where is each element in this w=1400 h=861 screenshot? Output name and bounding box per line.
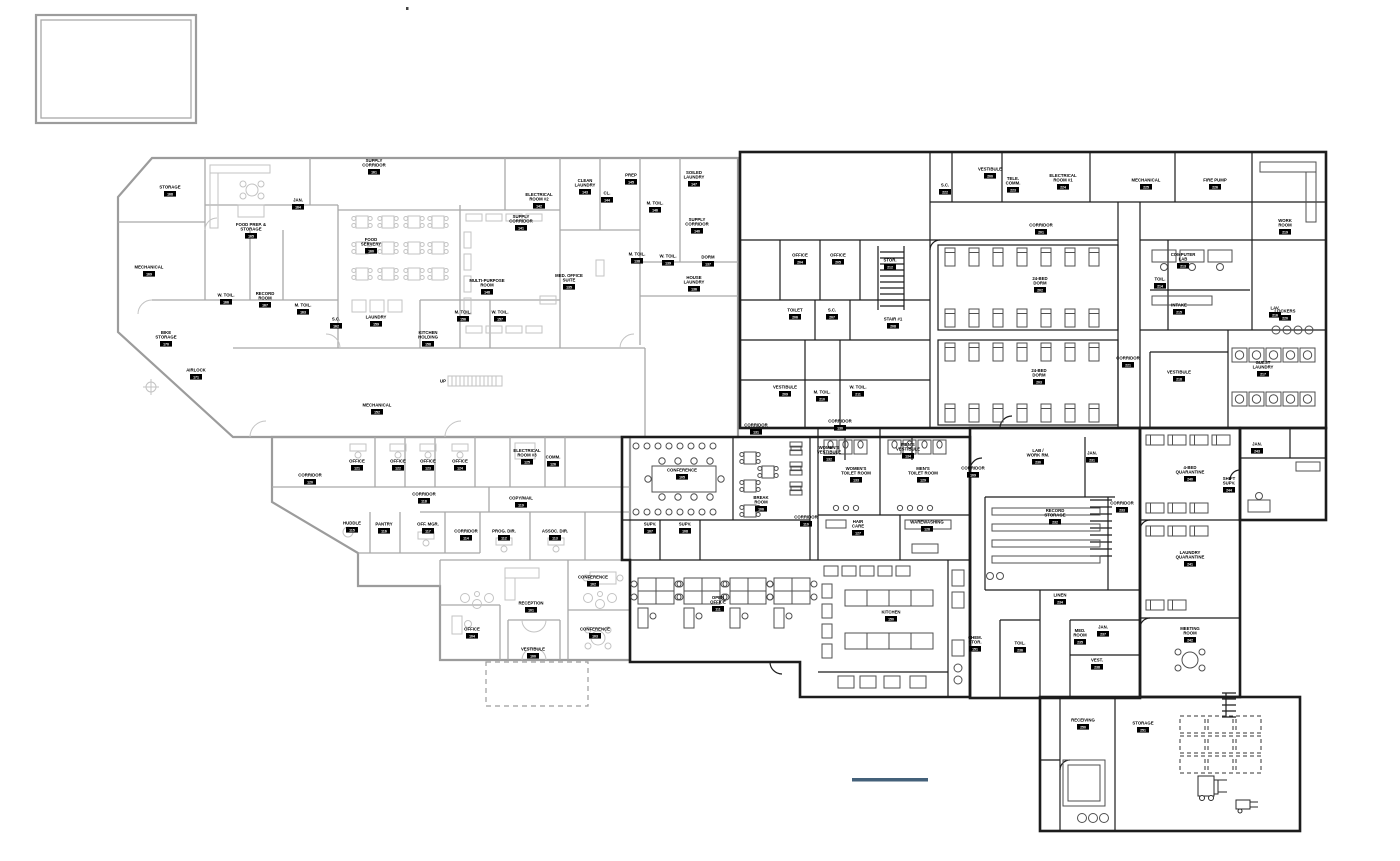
svg-text:TOILET: TOILET xyxy=(787,308,803,313)
room-label: SHIFTSUPV.244 xyxy=(1223,476,1236,493)
room-label: OFFICE104 xyxy=(464,627,480,639)
svg-text:STOR.: STOR. xyxy=(883,258,896,263)
room-label: BREAKROOM106 xyxy=(753,495,769,512)
svg-text:RECEPTION: RECEPTION xyxy=(518,601,543,606)
svg-text:W. TOIL.: W. TOIL. xyxy=(659,254,676,259)
svg-text:CHEM.STOR.: CHEM.STOR. xyxy=(968,635,982,645)
room-label: JAN.231 xyxy=(1086,451,1098,463)
kitchen-equipment xyxy=(822,566,964,688)
svg-text:126: 126 xyxy=(550,462,556,466)
svg-text:PROG. DIR.: PROG. DIR. xyxy=(492,529,516,534)
svg-text:213: 213 xyxy=(1180,264,1186,268)
svg-text:CORRIDOR: CORRIDOR xyxy=(412,492,436,497)
svg-text:236: 236 xyxy=(1017,648,1023,652)
room-label: CORRIDOR201 xyxy=(1029,223,1053,235)
svg-text:LAUNDRY: LAUNDRY xyxy=(366,315,387,320)
svg-text:M. TOIL.: M. TOIL. xyxy=(814,390,831,395)
svg-text:DORM: DORM xyxy=(701,255,715,260)
room-label: S.C.162 xyxy=(330,317,342,329)
svg-text:CORRIDOR: CORRIDOR xyxy=(298,473,322,478)
room-label: LINEN234 xyxy=(1054,593,1067,605)
svg-text:HAIRCARE: HAIRCARE xyxy=(852,519,864,529)
svg-text:HUDDLE: HUDDLE xyxy=(343,521,361,526)
room-label: OPENOFFICE111 xyxy=(710,595,726,612)
records-shelving xyxy=(987,508,1101,580)
room-label: W. TOIL.211 xyxy=(849,385,866,397)
svg-text:MED.ROOM: MED.ROOM xyxy=(1073,628,1087,638)
svg-text:140: 140 xyxy=(694,229,700,233)
svg-text:RECORDSTORAGE: RECORDSTORAGE xyxy=(1044,508,1065,518)
room-label: SOILEDLAUNDRY147 xyxy=(684,170,705,187)
svg-text:144: 144 xyxy=(604,198,610,202)
svg-text:OFFICE: OFFICE xyxy=(464,627,480,632)
svg-text:230: 230 xyxy=(1035,460,1041,464)
room-label: CL.144 xyxy=(601,191,613,203)
svg-text:PANTRY: PANTRY xyxy=(375,522,392,527)
svg-text:OPENOFFICE: OPENOFFICE xyxy=(710,595,726,605)
svg-text:143: 143 xyxy=(582,190,588,194)
svg-text:PREP: PREP xyxy=(625,173,637,178)
ramp-up xyxy=(448,376,502,386)
room-label: CONFERENCE102 xyxy=(578,575,608,587)
svg-text:115: 115 xyxy=(349,528,355,532)
svg-text:222: 222 xyxy=(942,190,948,194)
svg-text:121: 121 xyxy=(354,466,360,470)
svg-text:MEETINGROOM: MEETINGROOM xyxy=(1180,626,1200,636)
svg-text:OFFICE: OFFICE xyxy=(390,459,406,464)
svg-text:233: 233 xyxy=(1119,508,1125,512)
svg-text:152: 152 xyxy=(374,410,380,414)
room-label: MEN'SVESTIBULE134 xyxy=(896,442,920,459)
grid-marker xyxy=(143,379,159,395)
svg-text:123: 123 xyxy=(425,466,431,470)
svg-text:232: 232 xyxy=(1052,520,1058,524)
svg-text:165: 165 xyxy=(248,234,254,238)
svg-text:CORRIDOR: CORRIDOR xyxy=(454,529,478,534)
svg-text:244: 244 xyxy=(1226,488,1232,492)
svg-text:145: 145 xyxy=(628,180,634,184)
svg-text:BIKESTORAGE: BIKESTORAGE xyxy=(155,330,176,340)
receiving-equipment xyxy=(1063,760,1109,823)
svg-text:250: 250 xyxy=(1080,725,1086,729)
svg-text:SUPV.: SUPV. xyxy=(679,522,692,527)
svg-text:158: 158 xyxy=(425,342,431,346)
svg-text:MEN'STOILET ROOM: MEN'STOILET ROOM xyxy=(908,466,938,476)
svg-text:135: 135 xyxy=(566,285,572,289)
svg-text:159: 159 xyxy=(373,322,379,326)
room-label: VEST.238 xyxy=(1091,658,1103,670)
office-block-outline xyxy=(272,437,630,660)
svg-text:133: 133 xyxy=(853,478,859,482)
room-label: VESTIBULE218 xyxy=(1167,370,1191,382)
svg-text:136: 136 xyxy=(691,287,697,291)
svg-text:OFFICE: OFFICE xyxy=(830,253,846,258)
forklift-symbol xyxy=(1198,776,1258,813)
room-label: MEN'STOILET ROOM129 xyxy=(908,466,938,483)
svg-text:24-BEDDORM: 24-BEDDORM xyxy=(1031,368,1046,378)
svg-text:MEN'SVESTIBULE: MEN'SVESTIBULE xyxy=(896,442,920,452)
entry-canopy xyxy=(486,662,588,706)
new-furniture xyxy=(631,162,1320,823)
svg-text:SUPPLYCORRIDOR: SUPPLYCORRIDOR xyxy=(509,214,533,224)
svg-text:SUPPLYCORRIDOR: SUPPLYCORRIDOR xyxy=(685,217,709,227)
room-label: STORAGE168 xyxy=(159,185,180,197)
room-label: M. TOIL.210 xyxy=(814,390,831,402)
svg-text:AIRLOCK: AIRLOCK xyxy=(186,368,206,373)
svg-text:224: 224 xyxy=(1060,185,1066,189)
svg-text:BREAKROOM: BREAKROOM xyxy=(753,495,769,505)
svg-text:160: 160 xyxy=(368,249,374,253)
room-label: OFFICE204 xyxy=(792,253,808,265)
svg-text:ELECTRICALROOM #2: ELECTRICALROOM #2 xyxy=(525,192,553,202)
svg-text:170: 170 xyxy=(163,342,169,346)
room-label: JAN.243 xyxy=(1251,442,1263,454)
svg-text:202: 202 xyxy=(1037,288,1043,292)
svg-text:114: 114 xyxy=(463,536,469,540)
svg-text:INTAKE: INTAKE xyxy=(1171,303,1187,308)
existing-partitions xyxy=(118,158,738,660)
room-label: VESTIBULE209 xyxy=(773,385,797,397)
svg-text:OFF. MGR.: OFF. MGR. xyxy=(417,522,439,527)
svg-text:CORRIDOR: CORRIDOR xyxy=(1029,223,1053,228)
svg-text:169: 169 xyxy=(146,272,152,276)
svg-text:CONFERENCE: CONFERENCE xyxy=(667,468,697,473)
svg-text:JAN.: JAN. xyxy=(1098,625,1108,630)
svg-text:207: 207 xyxy=(829,315,835,319)
svg-text:119: 119 xyxy=(518,503,524,507)
room-label: RECORDROOM167 xyxy=(256,291,275,308)
svg-text:116: 116 xyxy=(381,529,387,533)
svg-text:226: 226 xyxy=(1212,185,1218,189)
svg-text:CORRIDOR: CORRIDOR xyxy=(1110,501,1134,506)
svg-text:206: 206 xyxy=(792,315,798,319)
svg-text:S.C.: S.C. xyxy=(941,183,949,188)
room-label: MECHANICAL225 xyxy=(1132,178,1161,190)
svg-text:216: 216 xyxy=(1272,313,1278,317)
svg-text:GUESTLAUNDRY: GUESTLAUNDRY xyxy=(1253,360,1274,370)
quarantine-beds xyxy=(1146,435,1230,610)
svg-text:241: 241 xyxy=(1187,562,1193,566)
svg-text:M. TOIL.: M. TOIL. xyxy=(455,310,472,315)
svg-text:166: 166 xyxy=(223,300,229,304)
labels-layer: STORAGE168MECHANICAL169BIKESTORAGE170AIR… xyxy=(135,158,1296,733)
svg-text:HOUSELAUNDRY: HOUSELAUNDRY xyxy=(684,275,705,285)
svg-text:231: 231 xyxy=(1089,458,1095,462)
svg-text:234: 234 xyxy=(1057,600,1063,604)
svg-text:150: 150 xyxy=(888,617,894,621)
svg-text:108: 108 xyxy=(682,529,688,533)
room-label: M. TOIL.146 xyxy=(647,201,664,213)
svg-text:24-BEDDORM: 24-BEDDORM xyxy=(1032,276,1047,286)
svg-text:SHIFTSUPV.: SHIFTSUPV. xyxy=(1223,476,1236,486)
svg-text:TOIL.: TOIL. xyxy=(1155,277,1166,282)
svg-text:131: 131 xyxy=(753,430,759,434)
svg-text:167: 167 xyxy=(262,303,268,307)
svg-text:ELECTRICALROOM #3: ELECTRICALROOM #3 xyxy=(513,448,541,458)
svg-text:138: 138 xyxy=(634,259,640,263)
svg-text:VESTIBULE: VESTIBULE xyxy=(978,167,1002,172)
room-label: JAN.164 xyxy=(292,198,304,210)
room-label: S.C.222 xyxy=(939,183,951,195)
svg-text:106: 106 xyxy=(758,507,764,511)
svg-text:OFFICE: OFFICE xyxy=(420,459,436,464)
svg-text:157: 157 xyxy=(497,317,503,321)
svg-text:212: 212 xyxy=(887,265,893,269)
svg-text:TELE.COMM.: TELE.COMM. xyxy=(1006,176,1021,186)
svg-text:151: 151 xyxy=(972,647,978,651)
break-room-furniture xyxy=(740,442,802,517)
room-label: CORRIDOR221 xyxy=(1116,356,1140,368)
svg-text:S.C.: S.C. xyxy=(332,317,340,322)
svg-text:209: 209 xyxy=(782,392,788,396)
svg-text:JAN.: JAN. xyxy=(1252,442,1262,447)
svg-text:CONFERENCE: CONFERENCE xyxy=(580,627,610,632)
svg-text:LAB /WORK RM.: LAB /WORK RM. xyxy=(1027,448,1050,458)
room-label: COPY/MAIL119 xyxy=(509,496,533,508)
room-label: CONFERENCE105 xyxy=(667,468,697,480)
svg-text:103: 103 xyxy=(592,634,598,638)
svg-text:CL.: CL. xyxy=(604,191,611,196)
svg-text:130: 130 xyxy=(837,426,843,430)
svg-text:FOOD PREP. &STORAGE: FOOD PREP. &STORAGE xyxy=(236,222,266,232)
room-label: RECORDSTORAGE232 xyxy=(1044,508,1065,525)
room-label: W. TOIL.166 xyxy=(217,293,234,305)
svg-text:ASSOC. DIR.: ASSOC. DIR. xyxy=(542,529,568,534)
svg-text:CONFERENCE: CONFERENCE xyxy=(578,575,608,580)
room-label: CORRIDOR114 xyxy=(454,529,478,541)
room-label: S.C.207 xyxy=(826,308,838,320)
svg-text:104: 104 xyxy=(469,634,475,638)
svg-text:LINEN: LINEN xyxy=(1054,593,1067,598)
svg-text:146: 146 xyxy=(652,208,658,212)
room-label: VESTIBULE200 xyxy=(978,167,1002,179)
svg-text:163: 163 xyxy=(300,310,306,314)
room-label: OFFICE121 xyxy=(349,459,365,471)
room-label: WOMEN'SVESTIBULE132 xyxy=(817,445,841,462)
room-label: MECHANICAL169 xyxy=(135,265,164,277)
room-label: W. TOIL.157 xyxy=(491,310,508,322)
svg-text:243: 243 xyxy=(1254,449,1260,453)
svg-text:VESTIBULE: VESTIBULE xyxy=(521,647,545,652)
room-label: CORRIDOR118 xyxy=(412,492,436,504)
svg-text:120: 120 xyxy=(307,480,313,484)
room-label: PREP145 xyxy=(625,173,637,185)
svg-text:WOMEN'STOILET ROOM: WOMEN'STOILET ROOM xyxy=(841,466,871,476)
svg-text:M. TOIL.: M. TOIL. xyxy=(647,201,664,206)
room-label: SUPV.108 xyxy=(679,522,692,534)
svg-text:171: 171 xyxy=(193,375,199,379)
svg-text:CORRIDOR: CORRIDOR xyxy=(794,515,818,520)
svg-text:148: 148 xyxy=(484,290,490,294)
svg-text:240: 240 xyxy=(1187,477,1193,481)
sheet-mark xyxy=(406,7,409,10)
courtyard-outline xyxy=(36,15,196,123)
svg-text:215: 215 xyxy=(1176,310,1182,314)
svg-text:237: 237 xyxy=(1100,632,1106,636)
svg-text:128: 128 xyxy=(924,527,930,531)
room-label: WOMEN'STOILET ROOM133 xyxy=(841,466,871,483)
room-label: M. TOIL.138 xyxy=(629,252,646,264)
svg-text:OFFICE: OFFICE xyxy=(792,253,808,258)
svg-text:242: 242 xyxy=(1187,638,1193,642)
room-label: RECEPTION101 xyxy=(518,601,543,613)
svg-text:156: 156 xyxy=(460,317,466,321)
svg-text:147: 147 xyxy=(691,182,697,186)
room-label: STORAGE251 xyxy=(1132,721,1153,733)
pallet-grid xyxy=(1180,716,1261,773)
svg-text:STORAGE: STORAGE xyxy=(1132,721,1153,726)
room-label: SUPPLYCORRIDOR141 xyxy=(509,214,533,231)
svg-text:4-BEDQUARANTINE: 4-BEDQUARANTINE xyxy=(1176,465,1205,475)
svg-text:MECHANICAL: MECHANICAL xyxy=(1132,178,1161,183)
svg-text:FIRE PUMP: FIRE PUMP xyxy=(1203,178,1227,183)
room-label: WAREWASHING128 xyxy=(910,520,944,532)
svg-text:129: 129 xyxy=(920,478,926,482)
room-label: STAIR #1208 xyxy=(884,317,903,329)
svg-text:219: 219 xyxy=(1282,230,1288,234)
svg-text:118: 118 xyxy=(421,499,427,503)
svg-text:137: 137 xyxy=(705,262,711,266)
svg-text:203: 203 xyxy=(1036,380,1042,384)
svg-text:TOIL.: TOIL. xyxy=(1015,641,1026,646)
new-partitions xyxy=(622,152,1326,831)
room-label: CORRIDOR233 xyxy=(1110,501,1134,513)
room-label: RECEIVING250 xyxy=(1071,718,1095,730)
svg-text:WORKROOM: WORKROOM xyxy=(1278,218,1293,228)
svg-text:217: 217 xyxy=(1260,372,1266,376)
svg-text:102: 102 xyxy=(590,582,596,586)
svg-text:STAIR #1: STAIR #1 xyxy=(884,317,903,322)
svg-text:220: 220 xyxy=(1282,316,1288,320)
svg-text:210: 210 xyxy=(819,397,825,401)
svg-text:WOMEN'SVESTIBULE: WOMEN'SVESTIBULE xyxy=(817,445,841,455)
floor-plan-svg: STORAGE168MECHANICAL169BIKESTORAGE170AIR… xyxy=(0,0,1400,861)
center-block-outline xyxy=(622,437,970,697)
svg-text:MECHANICAL: MECHANICAL xyxy=(363,403,392,408)
room-label: OFFICE205 xyxy=(830,253,846,265)
room-label: HUDDLE115 xyxy=(343,521,361,533)
room-label: SUPPLYCORRIDOR161 xyxy=(362,158,386,175)
svg-text:CORRIDOR: CORRIDOR xyxy=(961,466,985,471)
room-label: MED. OFFICESUITE135 xyxy=(555,273,583,290)
svg-text:201: 201 xyxy=(1038,230,1044,234)
svg-text:127: 127 xyxy=(855,531,861,535)
svg-text:MED. OFFICESUITE: MED. OFFICESUITE xyxy=(555,273,583,283)
svg-text:OFFICE: OFFICE xyxy=(349,459,365,464)
room-label: OFFICE123 xyxy=(420,459,436,471)
room-label: OFFICE122 xyxy=(390,459,406,471)
room-label: KITCHENHOLDING158 xyxy=(418,330,438,347)
room-label: UP xyxy=(440,379,446,384)
svg-text:221: 221 xyxy=(1125,363,1131,367)
svg-text:205: 205 xyxy=(835,260,841,264)
svg-text:164: 164 xyxy=(295,205,301,209)
svg-text:204: 204 xyxy=(797,260,803,264)
room-label: INTAKE215 xyxy=(1171,303,1187,315)
svg-text:117: 117 xyxy=(425,529,431,533)
room-label: JAN.237 xyxy=(1097,625,1109,637)
room-label: 24-BEDDORM202 xyxy=(1032,276,1047,293)
svg-text:SUPV.: SUPV. xyxy=(644,522,657,527)
svg-text:ELECTRICALROOM #1: ELECTRICALROOM #1 xyxy=(1049,173,1077,183)
svg-text:STORAGE: STORAGE xyxy=(159,185,180,190)
svg-text:JAN.: JAN. xyxy=(293,198,303,203)
svg-text:CORRIDOR: CORRIDOR xyxy=(1116,356,1140,361)
svg-text:VESTIBULE: VESTIBULE xyxy=(773,385,797,390)
room-label: ELECTRICALROOM #1224 xyxy=(1049,173,1077,190)
room-label: LAB /WORK RM.230 xyxy=(1027,448,1050,465)
room-label: 4-BEDQUARANTINE240 xyxy=(1176,465,1205,482)
svg-text:VESTIBULE: VESTIBULE xyxy=(1167,370,1191,375)
room-label: OFFICE124 xyxy=(452,459,468,471)
svg-text:S.C.: S.C. xyxy=(828,308,836,313)
room-label: COMM.126 xyxy=(546,455,561,467)
floor-plan-page: STORAGE168MECHANICAL169BIKESTORAGE170AIR… xyxy=(0,0,1400,861)
svg-text:COPY/MAIL: COPY/MAIL xyxy=(509,496,533,501)
room-label: TOILET206 xyxy=(787,308,803,320)
svg-text:223: 223 xyxy=(1010,188,1016,192)
svg-text:KITCHEN: KITCHEN xyxy=(881,610,900,615)
svg-text:W. TOIL.: W. TOIL. xyxy=(849,385,866,390)
dorm-beds xyxy=(945,248,1099,422)
room-label: FOOD PREP. &STORAGE165 xyxy=(236,222,266,239)
svg-text:134: 134 xyxy=(905,454,911,458)
svg-text:141: 141 xyxy=(518,226,524,230)
svg-text:RECEIVING: RECEIVING xyxy=(1071,718,1095,723)
svg-text:CLEANLAUNDRY: CLEANLAUNDRY xyxy=(575,178,596,188)
svg-text:WAREWASHING: WAREWASHING xyxy=(910,520,944,525)
svg-text:225: 225 xyxy=(1143,185,1149,189)
svg-text:161: 161 xyxy=(371,170,377,174)
room-label: M. TOIL.163 xyxy=(295,303,312,315)
svg-text:W. TOIL.: W. TOIL. xyxy=(217,293,234,298)
room-label: TOIL.236 xyxy=(1014,641,1026,653)
svg-text:214: 214 xyxy=(1157,284,1163,288)
svg-text:W. TOIL.: W. TOIL. xyxy=(491,310,508,315)
svg-text:211: 211 xyxy=(855,392,861,396)
room-label: TOIL.214 xyxy=(1154,277,1166,289)
room-label: KITCHEN150 xyxy=(881,610,900,622)
svg-text:168: 168 xyxy=(167,192,173,196)
room-label: MULTI-PURPOSEROOM148 xyxy=(469,278,504,295)
svg-text:110: 110 xyxy=(803,522,809,526)
room-label: CORRIDOR120 xyxy=(298,473,322,485)
room-label: LAUNDRYQUARANTINE241 xyxy=(1176,550,1205,567)
room-label: PANTRY116 xyxy=(375,522,392,534)
scale-bar xyxy=(852,778,928,782)
laundry-machines xyxy=(1232,348,1315,406)
room-label: TELE.COMM.223 xyxy=(1006,176,1021,193)
room-label: SUPPLYCORRIDOR140 xyxy=(685,217,709,234)
room-label: MED.ROOM235 xyxy=(1073,628,1087,645)
toilet-fixtures xyxy=(824,440,951,553)
room-label: WORKROOM219 xyxy=(1278,218,1293,235)
room-label: SUPV.107 xyxy=(644,522,657,534)
room-label: W. TOIL.139 xyxy=(659,254,676,266)
svg-text:235: 235 xyxy=(1077,640,1083,644)
svg-text:208: 208 xyxy=(890,324,896,328)
svg-text:VEST.: VEST. xyxy=(1091,658,1103,663)
room-label: M. TOIL.156 xyxy=(455,310,472,322)
svg-text:KITCHENHOLDING: KITCHENHOLDING xyxy=(418,330,438,340)
room-label: LAUNDRY159 xyxy=(366,315,387,327)
svg-text:OFFICE: OFFICE xyxy=(452,459,468,464)
room-label: FIRE PUMP226 xyxy=(1203,178,1227,190)
svg-text:111: 111 xyxy=(715,607,721,611)
room-label: DORM137 xyxy=(701,255,715,267)
svg-text:105: 105 xyxy=(679,475,685,479)
svg-text:RECORDROOM: RECORDROOM xyxy=(256,291,275,301)
